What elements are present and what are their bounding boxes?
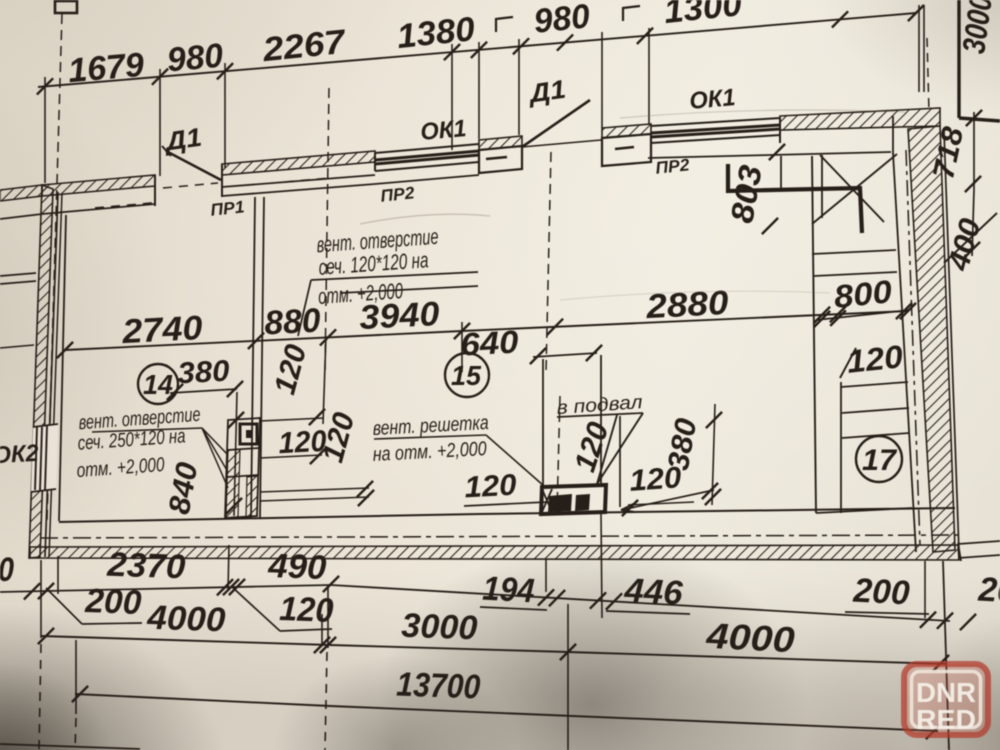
svg-text:803: 803 xyxy=(723,162,769,226)
svg-text:Д1: Д1 xyxy=(526,74,568,109)
svg-text:800: 800 xyxy=(832,273,894,315)
svg-text:980: 980 xyxy=(165,37,224,80)
svg-text:380: 380 xyxy=(662,416,704,473)
svg-text:490: 490 xyxy=(267,547,327,587)
svg-text:2880: 2880 xyxy=(644,284,729,326)
svg-text:15: 15 xyxy=(451,360,481,391)
svg-text:400: 400 xyxy=(942,215,988,275)
svg-text:ПР2: ПР2 xyxy=(380,183,416,206)
svg-text:3000: 3000 xyxy=(401,607,478,648)
svg-text:120: 120 xyxy=(464,469,518,505)
svg-text:отм. +2,000: отм. +2,000 xyxy=(76,454,165,482)
svg-text:120: 120 xyxy=(278,425,328,460)
svg-text:120: 120 xyxy=(845,338,905,380)
svg-text:980: 980 xyxy=(532,0,592,41)
svg-text:200: 200 xyxy=(852,572,911,613)
svg-text:446: 446 xyxy=(623,571,685,612)
svg-text:2740: 2740 xyxy=(120,309,203,351)
svg-text:ОК1: ОК1 xyxy=(688,84,736,115)
svg-text:0: 0 xyxy=(0,551,14,589)
svg-text:640: 640 xyxy=(460,324,520,363)
svg-text:RED: RED xyxy=(916,704,976,735)
svg-text:380: 380 xyxy=(177,355,231,391)
svg-text:840: 840 xyxy=(163,460,205,517)
svg-text:1679: 1679 xyxy=(67,46,146,90)
svg-text:на отм. +2,000: на отм. +2,000 xyxy=(372,438,487,466)
svg-text:ОК1: ОК1 xyxy=(419,115,467,146)
svg-text:4000: 4000 xyxy=(705,615,796,661)
svg-text:ПР1: ПР1 xyxy=(210,197,246,219)
svg-text:1380: 1380 xyxy=(395,10,477,56)
svg-text:ПР2: ПР2 xyxy=(655,155,691,178)
svg-text:ОК2: ОК2 xyxy=(0,440,40,469)
svg-text:1300: 1300 xyxy=(662,0,744,31)
svg-text:880: 880 xyxy=(263,302,321,343)
svg-text:120: 120 xyxy=(268,341,313,398)
svg-text:120: 120 xyxy=(279,590,334,630)
svg-text:13700: 13700 xyxy=(396,666,481,707)
svg-text:3000: 3000 xyxy=(955,0,999,56)
svg-text:200: 200 xyxy=(977,571,1000,612)
svg-text:194: 194 xyxy=(482,570,536,611)
svg-text:200: 200 xyxy=(84,582,142,622)
svg-text:Д1: Д1 xyxy=(162,122,204,157)
svg-text:14: 14 xyxy=(143,369,173,400)
svg-text:2370: 2370 xyxy=(106,546,186,587)
svg-text:17: 17 xyxy=(862,444,897,477)
svg-text:4000: 4000 xyxy=(146,599,226,640)
